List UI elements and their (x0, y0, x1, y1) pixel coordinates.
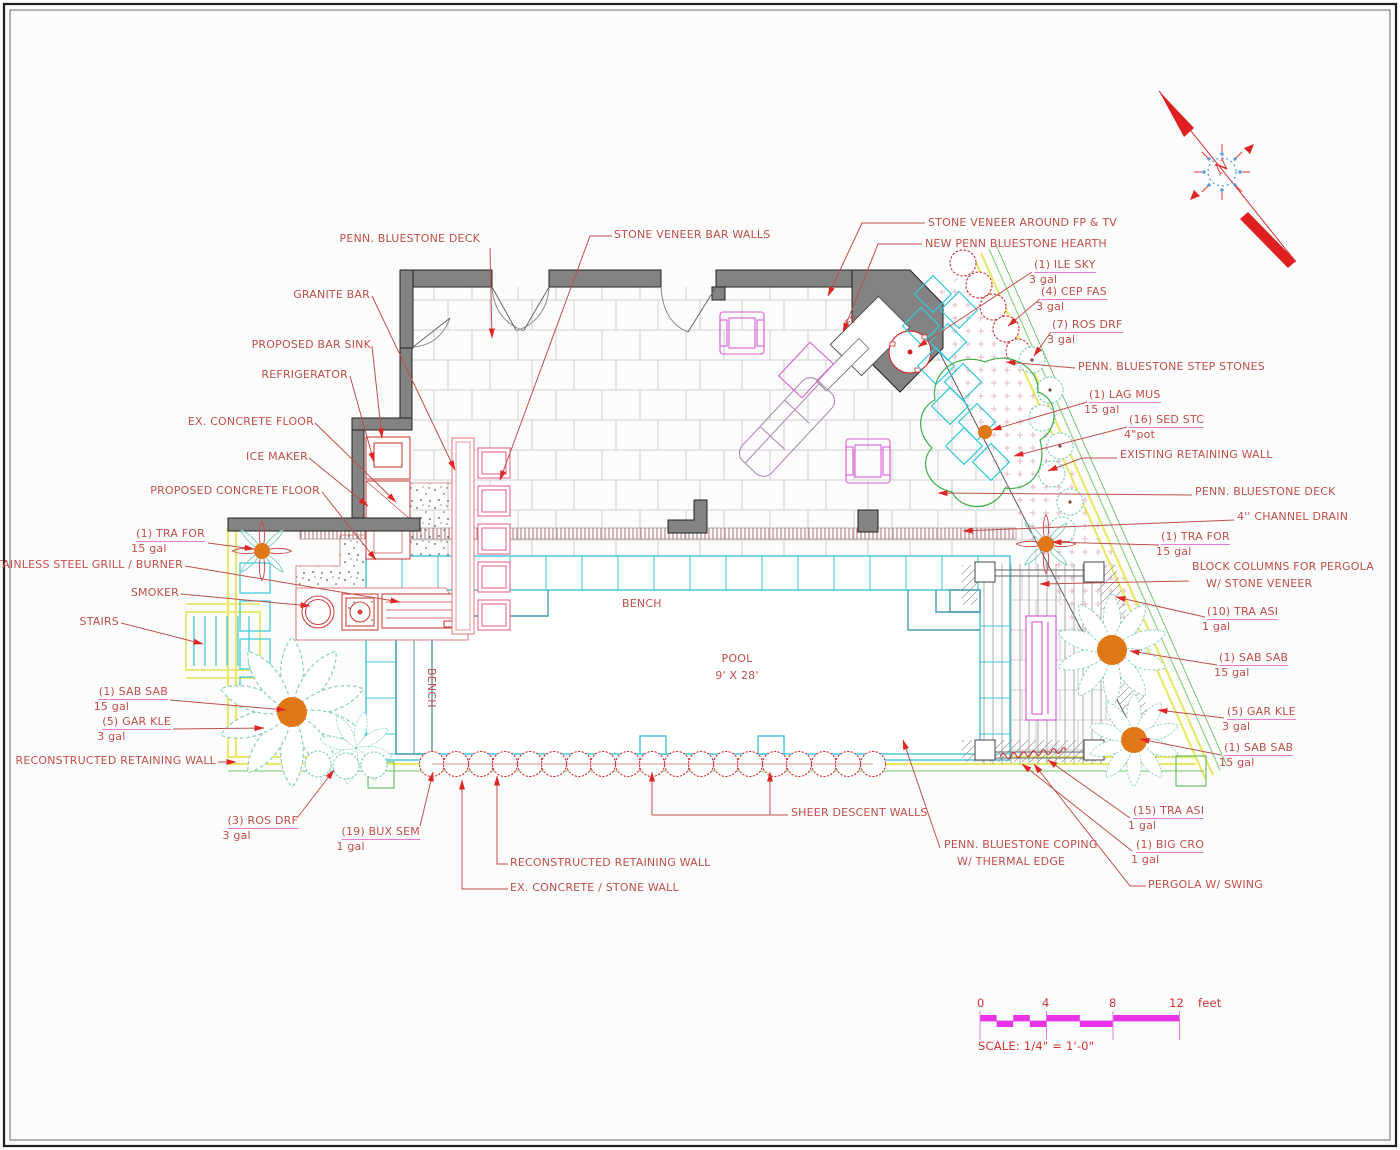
plant-size: 3 gal (223, 830, 299, 842)
plant-name: (1) SAB SAB (1219, 652, 1288, 666)
bench-top-label: BENCH (622, 598, 662, 610)
label-ice-maker: ICE MAKER (246, 451, 308, 463)
label-granite-bar: GRANITE BAR (293, 289, 370, 301)
label-channel-drain: 4'' CHANNEL DRAIN (1237, 511, 1348, 523)
plant-label-sab-sab-left: (1) SAB SAB 15 gal (99, 686, 168, 713)
label-proposed-bar-sink: PROPOSED BAR SINK (252, 339, 371, 351)
scale-tick-8: 8 (1109, 997, 1117, 1009)
plant-label-sed-stc: (16) SED STC 4"pot (1129, 414, 1204, 441)
plant-label-sab-sab-r2: (1) SAB SAB 15 gal (1224, 742, 1293, 769)
label-block-columns-line1: BLOCK COLUMNS FOR PERGOLA (1192, 561, 1374, 573)
north-arrow (1159, 91, 1296, 268)
plant-name: (7) ROS DRF (1052, 319, 1123, 333)
plant-name: (1) SAB SAB (99, 686, 168, 700)
plant-size: 1 gal (1131, 854, 1204, 866)
plant-name: (16) SED STC (1129, 414, 1204, 428)
label-coping-line1: PENN. BLUESTONE COPING (944, 839, 1098, 851)
label-grill-bur ner: STAINLESS STEEL GRILL / BURNER (0, 559, 183, 571)
plant-size: 15 gal (1219, 757, 1293, 769)
plant-size: 15 gal (131, 543, 205, 555)
scale-tick-4: 4 (1042, 997, 1050, 1009)
scale-unit: feet (1198, 997, 1222, 1009)
plant-name: (3) ROS DRF (228, 815, 299, 829)
label-penn-bluestone-deck-right: PENN. BLUESTONE DECK (1195, 486, 1336, 498)
plant-label-tra-asi-15: (15) TRA ASI 1 gal (1133, 805, 1204, 832)
plant-name: (10) TRA ASI (1207, 606, 1278, 620)
plant-label-ros-drf-7: (7) ROS DRF 3 gal (1052, 319, 1123, 346)
label-block-columns-line2: W/ STONE VENEER (1206, 578, 1312, 590)
bench-side-label: BENCH (425, 668, 437, 708)
pool-label: POOL (722, 653, 753, 665)
plant-name: (5) GAR KLE (102, 716, 171, 730)
plant-label-tra-for-right: (1) TRA FOR 15 gal (1161, 531, 1230, 558)
label-penn-bluestone-deck-top: PENN. BLUESTONE DECK (339, 233, 480, 245)
plant-name: (1) LAG MUS (1089, 389, 1161, 403)
plant-label-sab-sab-r1: (1) SAB SAB 15 gal (1219, 652, 1288, 679)
plant-name: (15) TRA ASI (1133, 805, 1204, 819)
label-proposed-concrete-floor: PROPOSED CONCRETE FLOOR (150, 485, 320, 497)
plant-name: (1) ILE SKY (1034, 259, 1096, 273)
plant-size: 3 gal (1047, 334, 1123, 346)
label-smoker: SMOKER (131, 587, 179, 599)
label-ex-concrete-floor: EX. CONCRETE FLOOR (188, 416, 314, 428)
plant-label-ros-drf-3: (3) ROS DRF 3 gal (228, 815, 299, 842)
plant-label-tra-for-left: (1) TRA FOR 15 gal (136, 528, 205, 555)
label-reconstructed-wall-left: RECONSTRUCTED RETAINING WALL (16, 755, 216, 767)
plant-size: 15 gal (1214, 667, 1288, 679)
plant-name: (1) BIG CRO (1136, 839, 1204, 853)
plant-name: (19) BUX SEM (341, 826, 420, 840)
plant-name: (1) TRA FOR (136, 528, 205, 542)
plant-size: 3 gal (1036, 301, 1107, 313)
plant-size: 15 gal (94, 701, 168, 713)
pool-size-label: 9' X 28' (715, 670, 758, 682)
plant-label-gar-kle-left: (5) GAR KLE 3 gal (102, 716, 171, 743)
scale-tick-12: 12 (1169, 997, 1184, 1009)
scale-tick-0: 0 (977, 997, 985, 1009)
plant-size: 1 gal (1202, 621, 1278, 633)
plant-size: 3 gal (97, 731, 171, 743)
plant-label-bux-sem: (19) BUX SEM 1 gal (341, 826, 420, 853)
plant-label-gar-kle-right: (5) GAR KLE 3 gal (1227, 706, 1296, 733)
site-plan-drawing (0, 0, 1400, 1150)
label-existing-retaining-wall: EXISTING RETAINING WALL (1120, 449, 1273, 461)
label-coping-line2: W/ THERMAL EDGE (957, 856, 1065, 868)
plant-size: 1 gal (1128, 820, 1204, 832)
label-stone-veneer-fp: STONE VENEER AROUND FP & TV (928, 217, 1117, 229)
plant-name: (5) GAR KLE (1227, 706, 1296, 720)
plant-size: 1 gal (336, 841, 420, 853)
plant-name: (4) CEP FAS (1041, 286, 1107, 300)
scale-bar (980, 1011, 1180, 1040)
plant-label-cep-fas: (4) CEP FAS 3 gal (1041, 286, 1107, 313)
label-ex-concrete-stone-wall: EX. CONCRETE / STONE WALL (510, 882, 679, 894)
scale-caption: SCALE: 1/4" = 1'-0" (978, 1040, 1094, 1052)
plant-label-big-cro: (1) BIG CRO 1 gal (1136, 839, 1204, 866)
label-sheer-descent-walls: SHEER DESCENT WALLS (791, 807, 928, 819)
label-step-stones: PENN. BLUESTONE STEP STONES (1078, 361, 1265, 373)
plant-name: (1) TRA FOR (1161, 531, 1230, 545)
plant-name: (1) SAB SAB (1224, 742, 1293, 756)
plant-label-lag-mus: (1) LAG MUS 15 gal (1089, 389, 1161, 416)
label-refrigerator: REFRIGERATOR (261, 369, 348, 381)
label-reconstructed-wall-bottom: RECONSTRUCTED RETAINING WALL (510, 857, 710, 869)
label-pergola-swing: PERGOLA W/ SWING (1148, 879, 1263, 891)
plant-size: 4"pot (1124, 429, 1204, 441)
plant-label-ile-sky: (1) ILE SKY 3 gal (1034, 259, 1096, 286)
label-stairs: STAIRS (80, 616, 119, 628)
landscape-plan-page: PENN. BLUESTONE DECK GRANITE BAR STONE V… (0, 0, 1400, 1150)
plant-label-tra-asi-10: (10) TRA ASI 1 gal (1207, 606, 1278, 633)
label-stone-veneer-bar-walls: STONE VENEER BAR WALLS (614, 229, 770, 241)
plant-size: 3 gal (1222, 721, 1296, 733)
label-hearth: NEW PENN BLUESTONE HEARTH (925, 238, 1107, 250)
plant-size: 15 gal (1156, 546, 1230, 558)
